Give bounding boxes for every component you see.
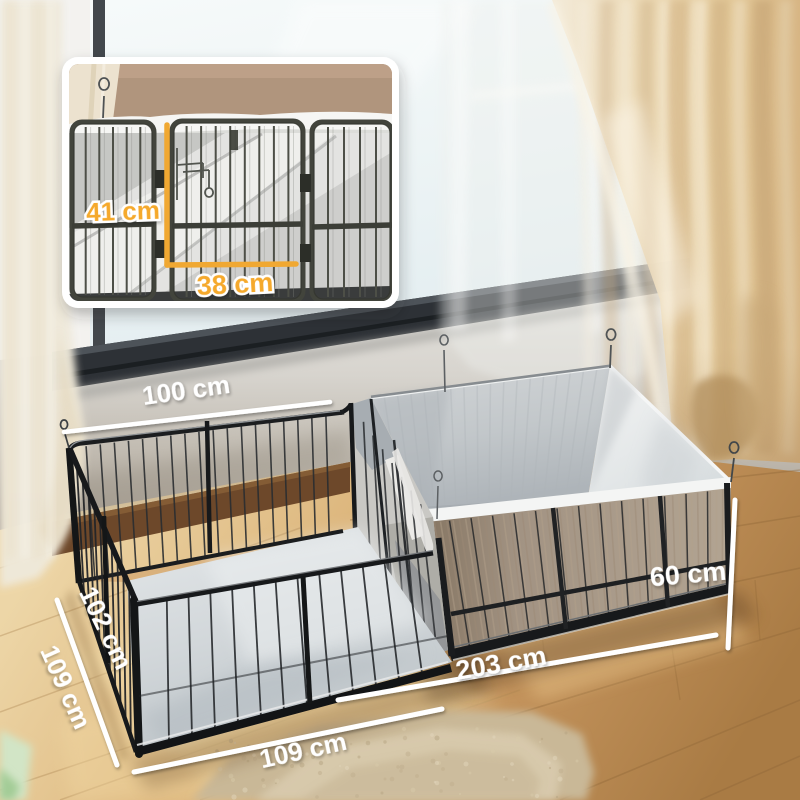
svg-text:38 cm: 38 cm — [196, 267, 274, 301]
svg-text:41 cm: 41 cm — [86, 195, 161, 228]
